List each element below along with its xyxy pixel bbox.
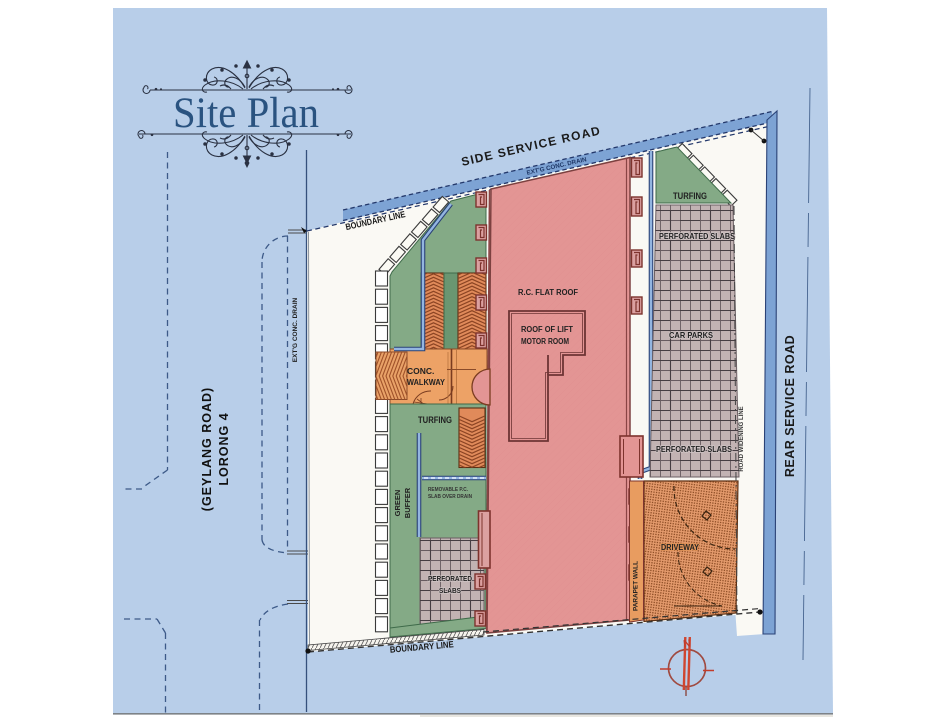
svg-text:PERFORATED SLABS: PERFORATED SLABS (659, 232, 735, 241)
svg-text:MOTOR ROOM: MOTOR ROOM (521, 337, 569, 346)
svg-text:R.C. FLAT ROOF: R.C. FLAT ROOF (518, 288, 578, 297)
svg-text:GREEN: GREEN (393, 490, 402, 517)
svg-text:EXT'G CONC. DRAIN: EXT'G CONC. DRAIN (292, 298, 299, 363)
svg-text:Site Plan: Site Plan (173, 90, 319, 137)
svg-text:ROAD WIDENING LINE: ROAD WIDENING LINE (739, 406, 745, 471)
svg-text:CAR PARKS: CAR PARKS (669, 331, 713, 340)
svg-text:TURFING: TURFING (673, 191, 707, 201)
svg-text:LORONG 4: LORONG 4 (217, 412, 231, 485)
svg-text:SLABS: SLABS (439, 588, 461, 595)
svg-text:PERFORATED: PERFORATED (428, 576, 472, 583)
svg-text:TURFING: TURFING (418, 415, 452, 425)
svg-text:WALKWAY: WALKWAY (407, 377, 445, 387)
svg-text:BUFFER: BUFFER (403, 487, 412, 518)
svg-text:REAR SERVICE ROAD: REAR SERVICE ROAD (783, 335, 797, 477)
svg-text:PARAPET WALL: PARAPET WALL (634, 561, 640, 611)
svg-text:REMOVABLE P.C.: REMOVABLE P.C. (428, 487, 469, 493)
svg-text:(GEYLANG ROAD): (GEYLANG ROAD) (200, 387, 214, 511)
svg-text:PERFORATED SLABS: PERFORATED SLABS (656, 445, 732, 454)
svg-text:DRIVEWAY: DRIVEWAY (661, 543, 700, 552)
svg-text:SLAB OVER DRAIN: SLAB OVER DRAIN (428, 494, 472, 500)
svg-text:ROOF OF LIFT: ROOF OF LIFT (521, 325, 573, 334)
svg-text:CONC.: CONC. (407, 366, 434, 376)
